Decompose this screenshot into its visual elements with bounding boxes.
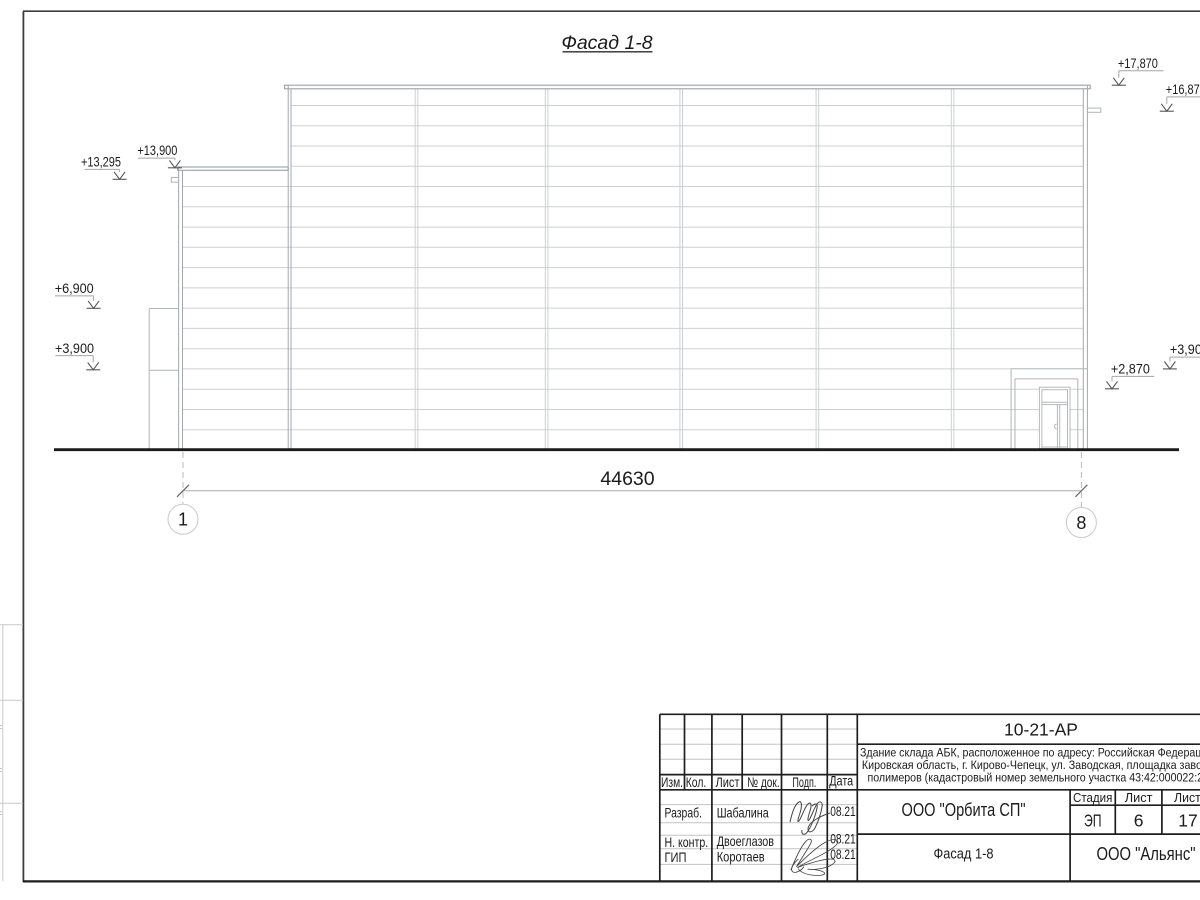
- svg-text:Лист: Лист: [716, 774, 740, 790]
- svg-text::: :: [0, 724, 2, 731]
- svg-text:10-21-АР: 10-21-АР: [1004, 720, 1078, 740]
- svg-text:ГИП: ГИП: [665, 849, 687, 865]
- svg-text:+16,870: +16,870: [1166, 82, 1200, 97]
- svg-text:17: 17: [1178, 811, 1197, 831]
- svg-text:+6,900: +6,900: [55, 281, 94, 296]
- svg-text:Лист: Лист: [1125, 790, 1153, 805]
- svg-text:+13,900: +13,900: [137, 143, 177, 158]
- svg-text:Шабалина: Шабалина: [717, 805, 769, 821]
- svg-text:Двоеглазов: Двоеглазов: [717, 833, 774, 849]
- svg-text:ООО "Орбита СП": ООО "Орбита СП": [902, 800, 1026, 820]
- svg-text:ООО "Альянс": ООО "Альянс": [1097, 843, 1196, 864]
- svg-text:ЭП: ЭП: [1084, 811, 1102, 831]
- svg-text:Дата: Дата: [829, 773, 853, 789]
- svg-text:Фасад 1-8: Фасад 1-8: [934, 847, 994, 863]
- svg-text:№ док.: № док.: [747, 774, 780, 790]
- svg-text:+3,900: +3,900: [1170, 342, 1200, 357]
- svg-text:6: 6: [1134, 811, 1144, 831]
- svg-text:Кол.: Кол.: [686, 774, 707, 790]
- svg-text:+3,900: +3,900: [55, 341, 94, 356]
- svg-text:+2,870: +2,870: [1111, 362, 1150, 377]
- svg-text:Листов: Листов: [1174, 790, 1200, 805]
- svg-text:Стадия: Стадия: [1073, 790, 1112, 805]
- svg-text:Разраб.: Разраб.: [665, 804, 703, 820]
- svg-text:+13,295: +13,295: [81, 154, 121, 169]
- svg-text:Фасад 1-8: Фасад 1-8: [561, 32, 652, 54]
- svg-text:Н. контр.: Н. контр.: [665, 834, 709, 850]
- svg-text:44630: 44630: [600, 468, 654, 490]
- svg-text:1: 1: [178, 510, 188, 530]
- svg-text:Подп.: Подп.: [792, 774, 816, 790]
- svg-text:+17,870: +17,870: [1118, 56, 1158, 71]
- svg-text:08.21: 08.21: [830, 831, 856, 847]
- svg-text:полимеров (кадастровый номер з: полимеров (кадастровый номер земельного …: [868, 771, 1200, 785]
- svg-text::: :: [0, 810, 2, 817]
- svg-text:Изм.: Изм.: [661, 774, 683, 790]
- svg-text:Коротаев: Коротаев: [717, 849, 765, 865]
- svg-text:8: 8: [1076, 513, 1086, 533]
- svg-text:08.21: 08.21: [830, 803, 856, 819]
- svg-text::: :: [0, 767, 2, 774]
